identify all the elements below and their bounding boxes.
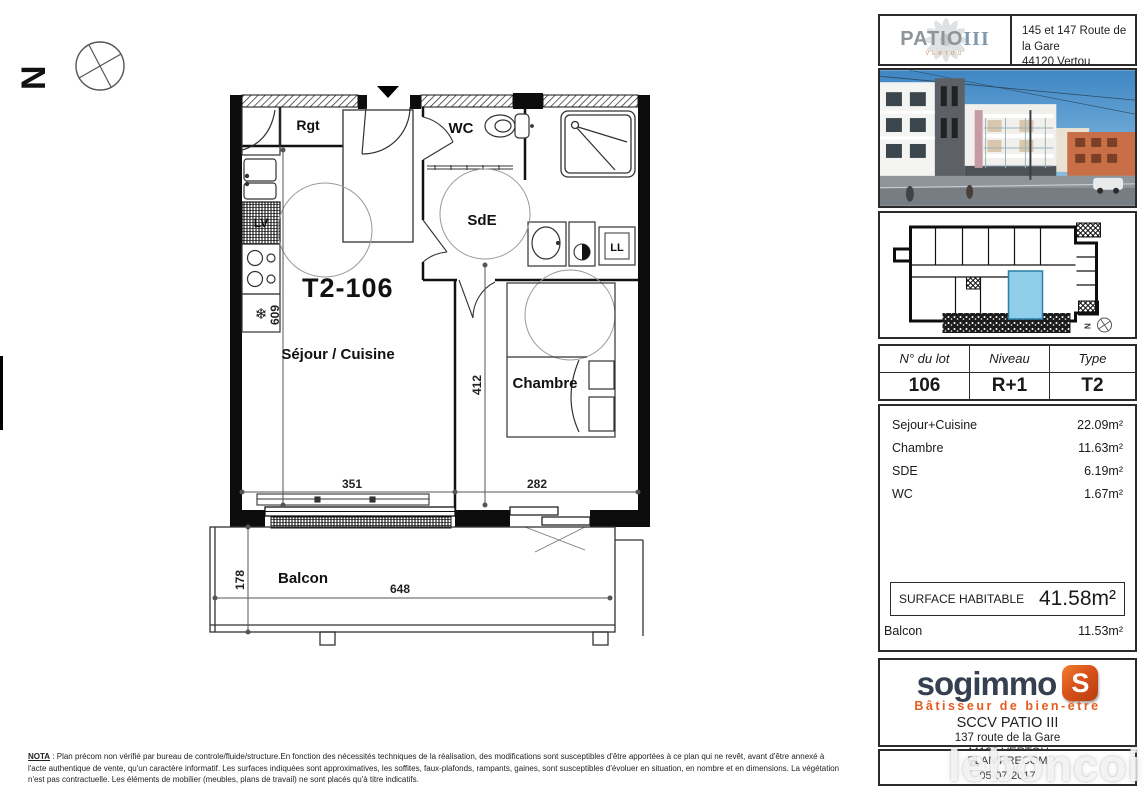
lot-header-niveau: Niveau: [970, 346, 1050, 373]
area-label: SDE: [892, 464, 918, 478]
room-label-chambre: Chambre: [512, 375, 577, 392]
lot-level: R+1: [970, 373, 1050, 400]
area-label: Chambre: [892, 441, 943, 455]
washing-machine-label: LL: [610, 242, 624, 254]
scan-edge-mark: [0, 356, 3, 430]
floor-drain-icon: [569, 222, 595, 266]
svg-text:609: 609: [268, 305, 282, 325]
fridge-snowflake-icon: ❄: [255, 306, 268, 323]
entry-wardrobe: [343, 110, 413, 242]
area-label: WC: [892, 487, 913, 501]
project-name: PATIO: [900, 28, 963, 50]
developer-badge-icon: S: [1062, 665, 1098, 701]
shower-screen: [427, 165, 513, 170]
room-label-sde: SdE: [467, 212, 496, 229]
lot-type: T2: [1050, 373, 1135, 400]
area-value: 22.09m²: [1077, 418, 1123, 432]
interior-walls: [242, 107, 638, 510]
lot-header-type: Type: [1050, 346, 1135, 373]
north-arrow: N: [15, 28, 130, 98]
room-label-wc: WC: [449, 120, 474, 137]
developer-tagline: Bâtisseur de bien-être: [880, 699, 1135, 713]
svg-text:648: 648: [390, 582, 410, 596]
nota-line1: : Plan précom non vérifié par bureau de …: [50, 752, 824, 761]
nota-label: NOTA: [28, 752, 50, 761]
entrance-door: [362, 107, 410, 154]
north-letter: N: [15, 65, 53, 90]
project-address: 145 et 147 Route de la Gare 44120 Vertou: [1012, 16, 1135, 64]
area-row-chambre: Chambre 11.63m²: [892, 441, 1123, 455]
main-floorplan: LV ❄: [195, 80, 665, 655]
project-header-box: PATIOIII VERTOU 145 et 147 Route de la G…: [878, 14, 1137, 66]
area-row-wc: WC 1.67m²: [892, 487, 1123, 501]
areas-box: Sejour+Cuisine 22.09m² Chambre 11.63m² S…: [878, 404, 1137, 652]
lot-number: 106: [880, 373, 970, 400]
room-label-balcon: Balcon: [278, 570, 328, 587]
svg-text:282: 282: [527, 477, 547, 491]
lot-table-header-row: N° du lot Niveau Type: [880, 346, 1135, 373]
sde-door: [423, 220, 447, 262]
project-address-line1: 145 et 147 Route de la Gare: [1022, 24, 1129, 55]
area-row-balcon: Balcon 11.53m²: [884, 624, 1123, 638]
unit-title: T2-106: [302, 273, 394, 303]
project-logo: PATIOIII VERTOU: [880, 16, 1012, 64]
surface-habitable-box: SURFACE HABITABLE 41.58m²: [890, 582, 1125, 616]
area-value: 11.63m²: [1078, 441, 1123, 455]
bay-window: [265, 507, 455, 528]
project-city: VERTOU: [900, 51, 990, 57]
area-value: 11.53m²: [1078, 624, 1123, 638]
area-label: Balcon: [884, 624, 922, 638]
exterior-walls: [230, 93, 650, 527]
floor-locator-plan: N: [878, 211, 1137, 339]
entrance-marker-icon: [377, 86, 399, 98]
shower-icon: [561, 111, 635, 177]
chambre-door: [459, 280, 495, 318]
surface-habitable-label: SURFACE HABITABLE: [899, 592, 1024, 606]
turning-circles: [278, 169, 615, 360]
developer-box: sogimmo S Bâtisseur de bien-être SCCV PA…: [878, 658, 1137, 747]
area-row-sejour: Sejour+Cuisine 22.09m²: [892, 418, 1123, 432]
developer-company: SCCV PATIO III: [880, 715, 1135, 731]
lot-table: N° du lot Niveau Type 106 R+1 T2: [878, 344, 1137, 401]
svg-text:178: 178: [233, 570, 247, 590]
room-label-sejour: Séjour / Cuisine: [281, 346, 394, 363]
nota-line2: l'acte authentique de vente, qu'un carac…: [28, 763, 876, 775]
surface-habitable-value: 41.58m²: [1039, 587, 1116, 611]
dishwasher-label: LV: [254, 216, 268, 230]
project-name-suffix: III: [963, 28, 989, 50]
area-value: 1.67m²: [1084, 487, 1123, 501]
area-value: 6.19m²: [1084, 464, 1123, 478]
nota-line3: n'est pas contractuelle. Les éléments de…: [28, 774, 876, 786]
building-photo: [878, 68, 1137, 208]
developer-wordmark: sogimmo: [917, 667, 1057, 700]
svg-text:412: 412: [470, 375, 484, 395]
developer-logo: sogimmo S: [880, 665, 1135, 701]
info-sidebar: PATIOIII VERTOU 145 et 147 Route de la G…: [878, 0, 1137, 800]
bed: [507, 283, 615, 437]
room-label-rgt: Rgt: [296, 117, 320, 133]
area-label: Sejour+Cuisine: [892, 418, 977, 432]
floorplan-sheet: N: [0, 0, 1142, 800]
leboncoin-watermark: leboncoin: [948, 740, 1142, 792]
lot-header-numero: N° du lot: [880, 346, 970, 373]
area-row-sde: SDE 6.19m²: [892, 464, 1123, 478]
balcony-outline: [210, 527, 643, 645]
washbasin-icon: [528, 222, 566, 266]
nota-disclaimer: NOTA : Plan précom non vérifié par burea…: [28, 751, 876, 786]
svg-text:351: 351: [342, 477, 362, 491]
toilet-icon: [485, 114, 533, 138]
highlighted-unit: [1009, 271, 1043, 319]
lot-table-value-row: 106 R+1 T2: [880, 373, 1135, 400]
mini-north-letter: N: [1084, 323, 1093, 329]
balcony-sliding-door: [510, 507, 590, 552]
